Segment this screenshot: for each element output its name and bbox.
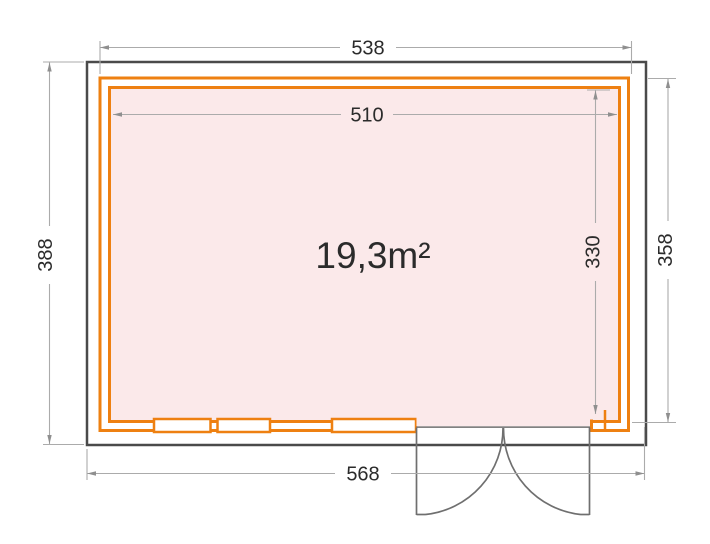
dim-label-568: 568: [346, 464, 379, 486]
arrow-left-icon: [100, 45, 109, 49]
door-opening: [417, 410, 606, 442]
arrow-up-icon: [666, 79, 670, 88]
door-opening-floor: [417, 410, 591, 426]
arrow-right-icon: [636, 471, 645, 475]
window-panel-1: [154, 419, 211, 432]
arrow-down-icon: [47, 435, 51, 444]
arrow-right-icon: [623, 45, 632, 49]
floor-plan-svg: 538 510 568 388 358: [0, 0, 710, 544]
dimension-left-outer: 388: [35, 62, 84, 445]
arrow-up-icon: [47, 63, 51, 72]
area-label: 19,3m²: [315, 235, 430, 276]
arrow-left-icon: [87, 471, 96, 475]
arrow-down-icon: [666, 413, 670, 422]
dim-label-358: 358: [655, 233, 677, 266]
dim-label-510: 510: [350, 105, 383, 127]
dim-label-538: 538: [351, 38, 384, 60]
window-panel-3: [332, 419, 416, 432]
dim-label-330: 330: [583, 235, 605, 268]
window-panel-2: [218, 419, 271, 432]
floor-plan-page: 538 510 568 388 358: [0, 0, 710, 544]
dim-label-388: 388: [35, 238, 57, 271]
